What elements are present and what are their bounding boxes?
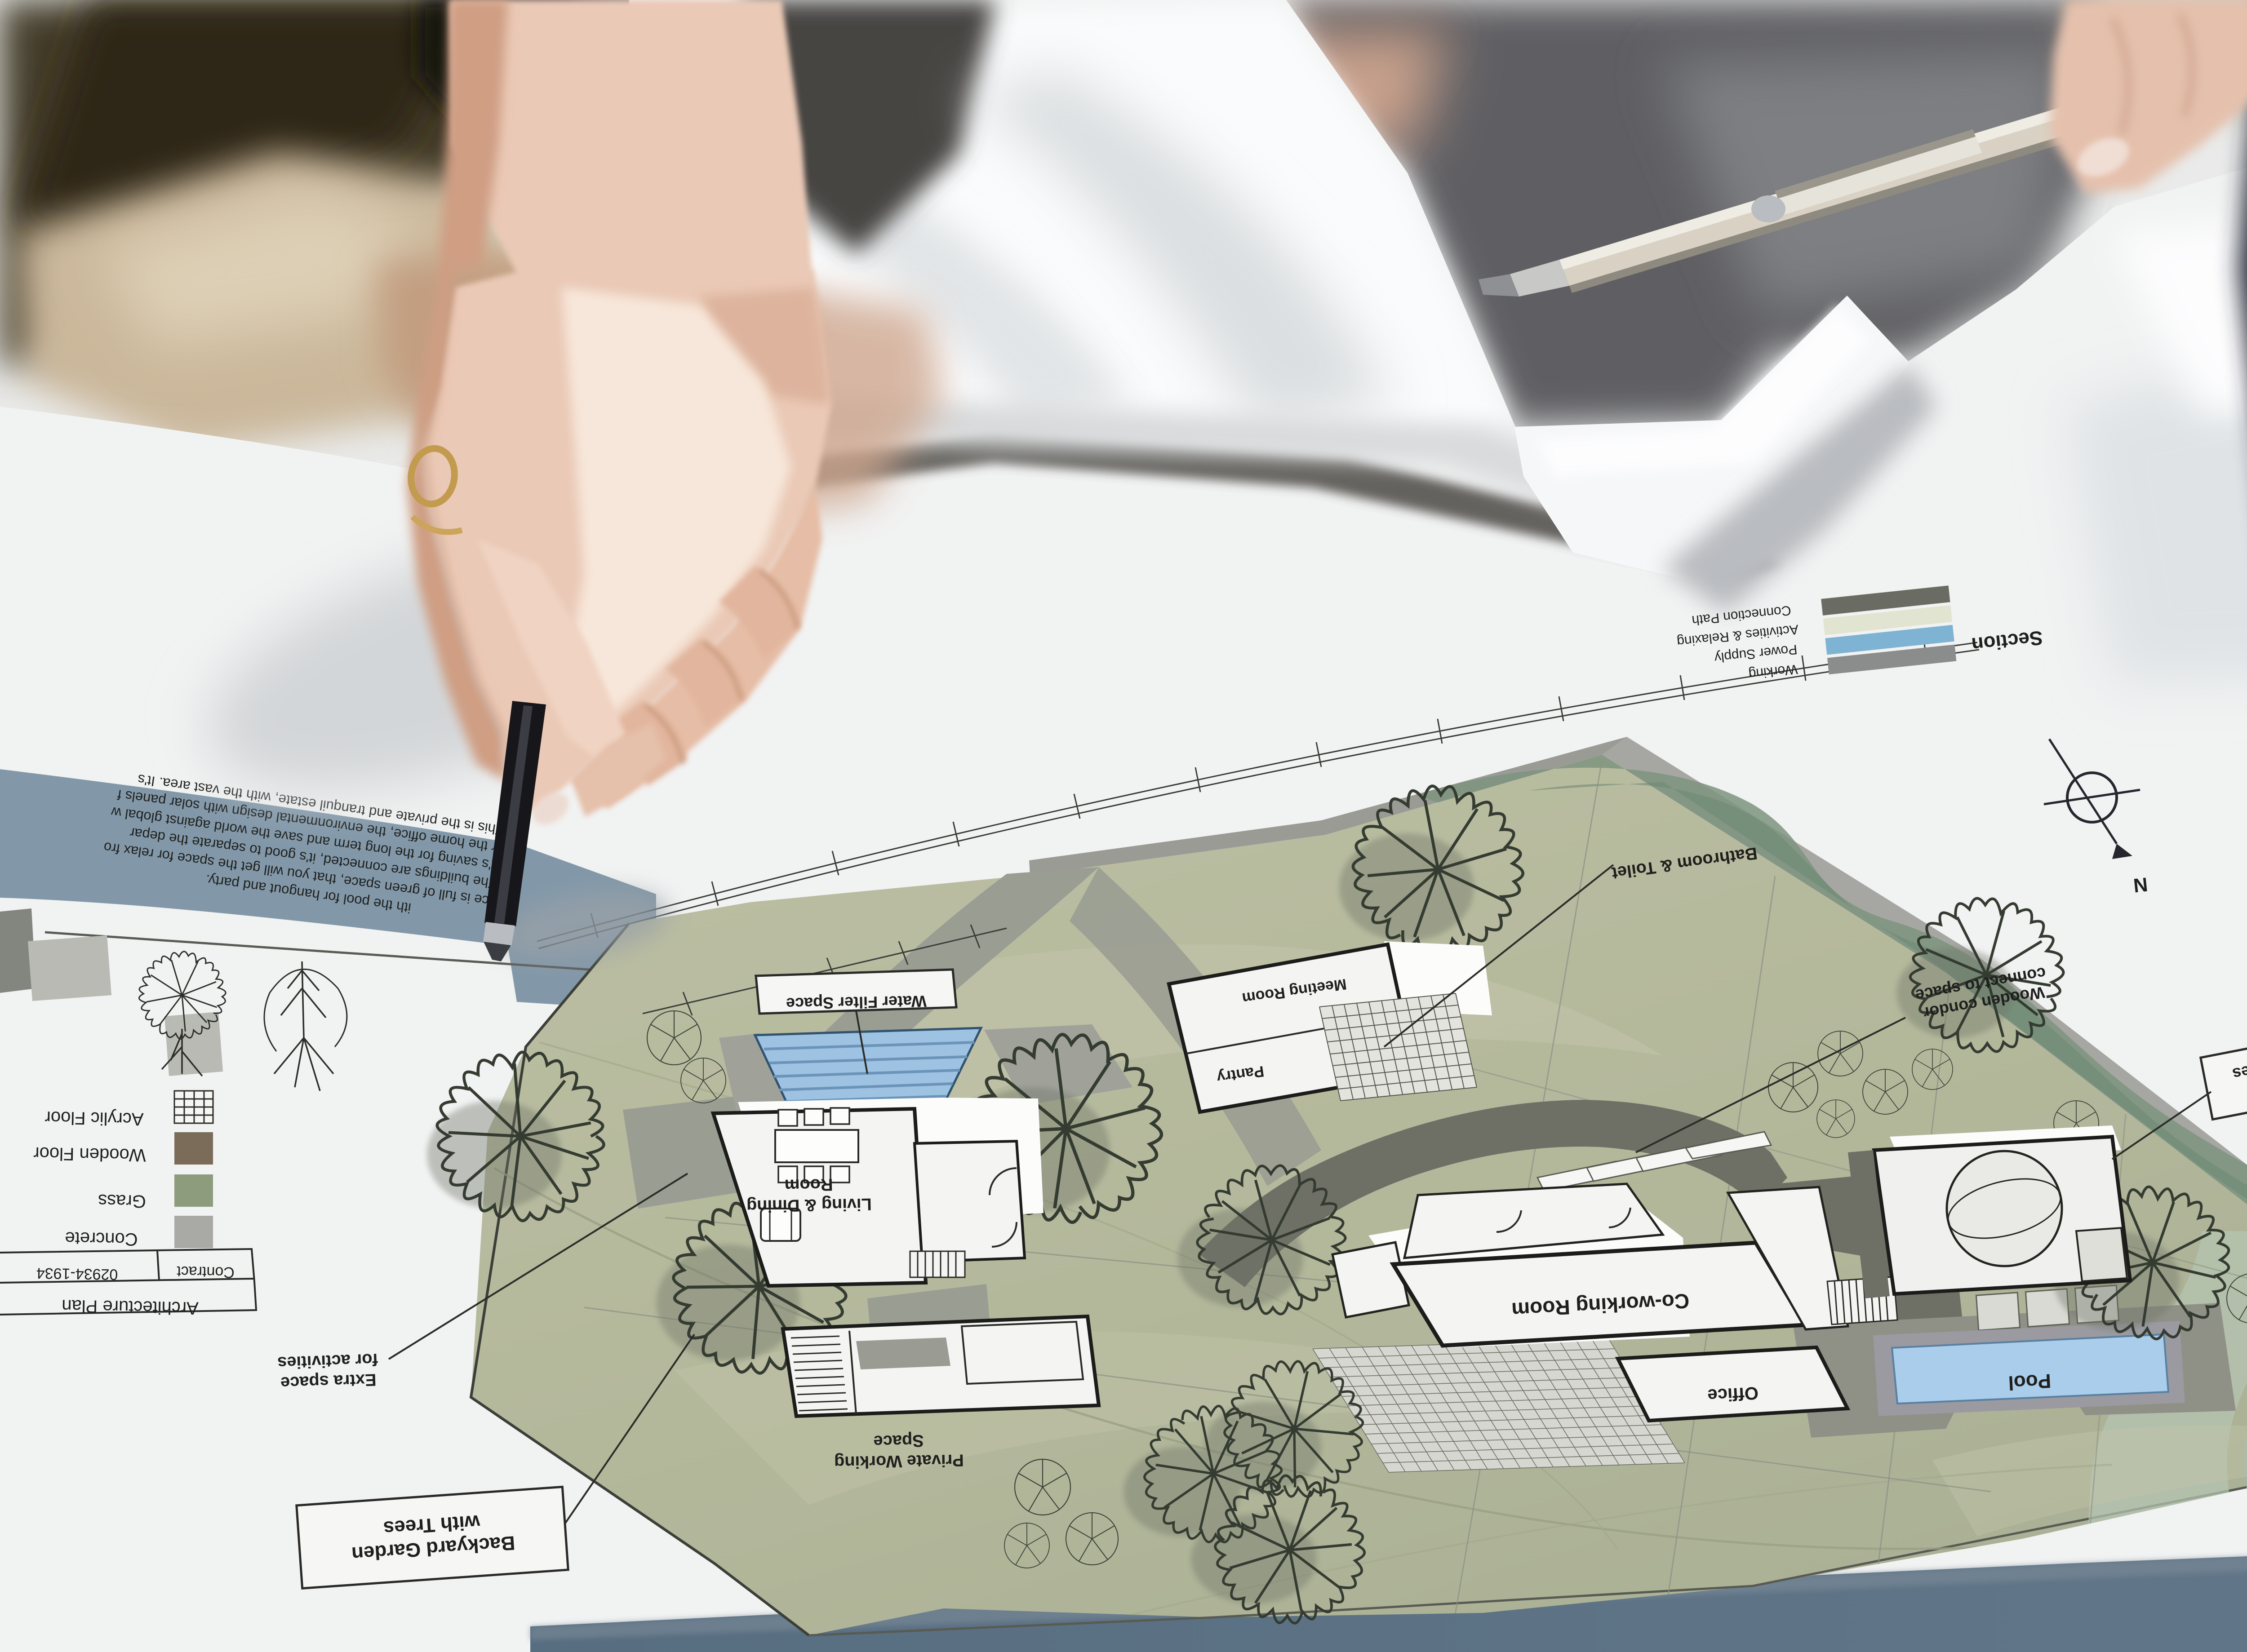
svg-text:Water Filter Space: Water Filter Space	[786, 992, 927, 1013]
svg-text:Wooden Floor: Wooden Floor	[33, 1143, 146, 1165]
svg-text:Contract: Contract	[176, 1263, 235, 1281]
svg-text:N: N	[2132, 873, 2149, 896]
svg-text:Extra space: Extra space	[280, 1370, 377, 1392]
svg-text:Acrylic Floor: Acrylic Floor	[44, 1107, 144, 1129]
svg-text:Room: Room	[784, 1175, 833, 1195]
svg-text:02934-1934: 02934-1934	[36, 1264, 118, 1283]
svg-text:Living & Dining: Living & Dining	[746, 1195, 872, 1216]
svg-text:Concrete: Concrete	[65, 1228, 138, 1249]
svg-text:Office: Office	[1707, 1383, 1759, 1405]
svg-text:for activities: for activities	[277, 1350, 378, 1372]
svg-text:Space: Space	[873, 1431, 924, 1451]
svg-text:Pool: Pool	[2008, 1370, 2052, 1394]
svg-text:Grass: Grass	[98, 1191, 146, 1211]
svg-text:Private Working: Private Working	[834, 1450, 964, 1471]
svg-text:Architecture Plan: Architecture Plan	[62, 1296, 199, 1318]
